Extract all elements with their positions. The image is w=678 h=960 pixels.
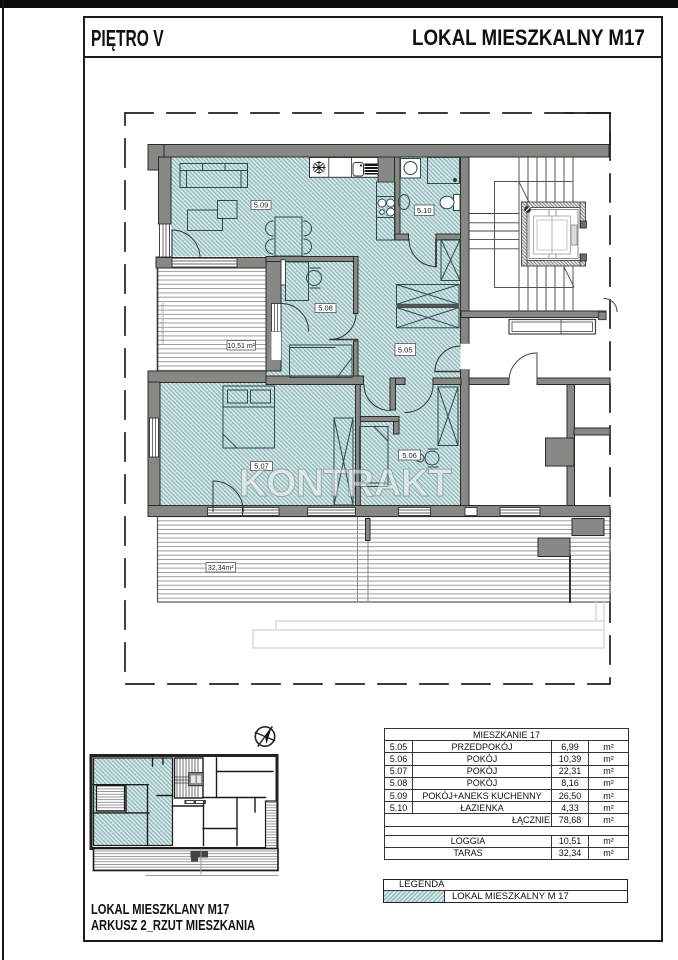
svg-text:10,51 m²: 10,51 m²	[227, 343, 255, 350]
svg-text:balustrada h=110 cm: balustrada h=110 cm	[160, 303, 165, 345]
svg-text:5.05: 5.05	[398, 346, 413, 355]
svg-text:5.06: 5.06	[402, 451, 417, 460]
svg-text:KONTRAKT: KONTRAKT	[239, 462, 452, 505]
svg-text:5.10: 5.10	[417, 206, 432, 215]
svg-text:32,34m²: 32,34m²	[208, 565, 234, 572]
svg-text:5.08: 5.08	[318, 304, 333, 313]
svg-text:5.09: 5.09	[254, 201, 269, 210]
